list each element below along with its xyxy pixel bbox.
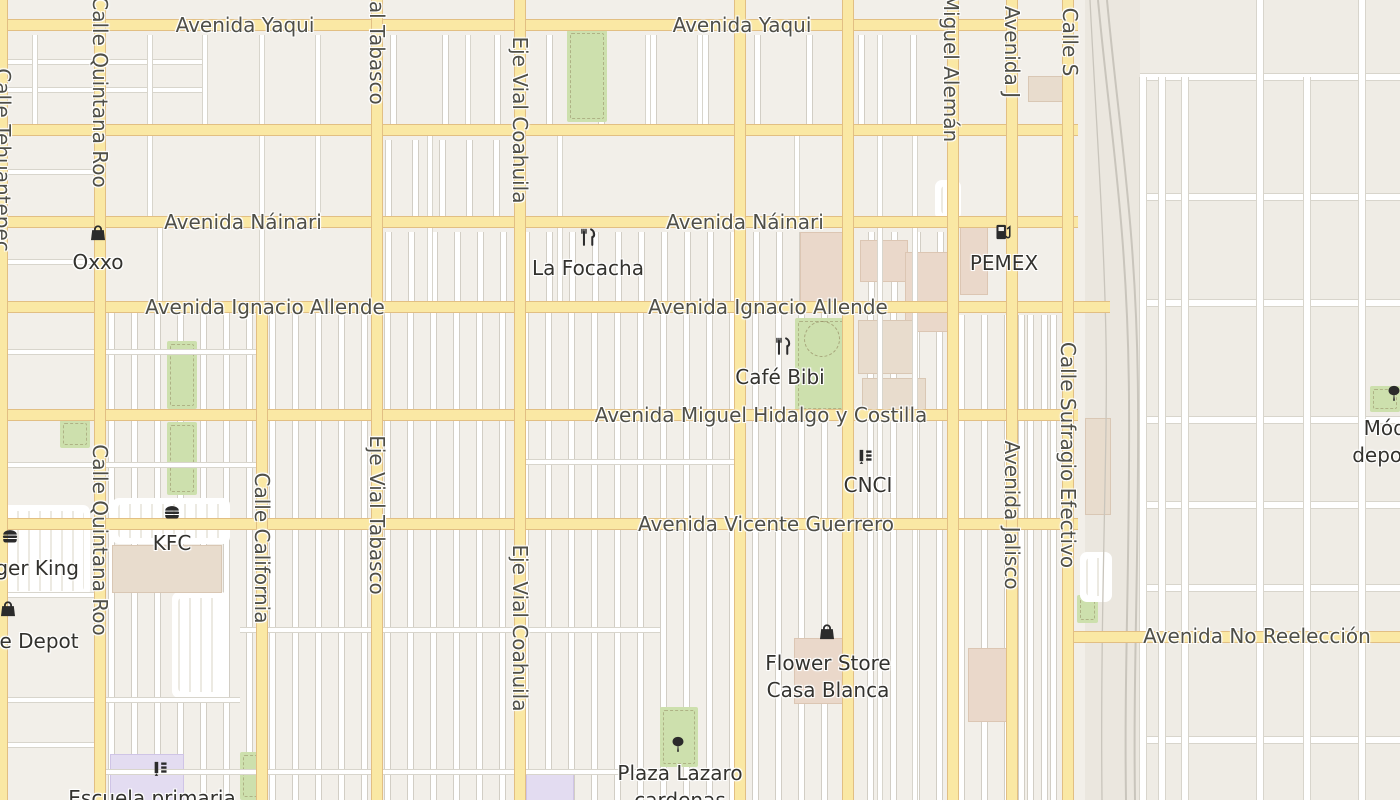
street-label: Avenida Yaqui (176, 13, 315, 37)
school-icon (151, 760, 170, 779)
shopping-bag-icon (89, 224, 108, 243)
street-label: Eje Vial Coahuila (508, 36, 532, 203)
building (1028, 76, 1064, 102)
burger-icon (1, 527, 20, 546)
street-label: Avenida Náinari (164, 210, 322, 234)
major-road-Avenida Jalisco (1006, 0, 1018, 800)
map-canvas[interactable]: Avenida YaquiAvenida YaquiAvenida Náinar… (0, 0, 1400, 800)
major-road-unnamed (734, 0, 746, 800)
park-green-area (567, 30, 607, 122)
railway-corridor-area (1085, 0, 1140, 800)
burger-icon (163, 503, 182, 522)
minor-road (240, 627, 660, 633)
poi-label-oxxo: Oxxo (72, 250, 123, 274)
minor-road (1358, 0, 1366, 800)
city-block-lots (390, 35, 943, 125)
poi-label-plaza-lazaro-cardenas: cardenas (634, 788, 725, 800)
restaurant-icon (579, 228, 598, 247)
street-label: Calle Tehuantepec (0, 68, 15, 252)
poi-label-cafe-bibi: Café Bibi (735, 365, 824, 389)
shopping-bag-icon (0, 600, 18, 619)
street-label: Avenida Vicente Guerrero (638, 512, 894, 536)
minor-road (1303, 77, 1311, 800)
minor-road (202, 35, 208, 130)
parking-lot (1080, 552, 1112, 602)
street-label: Calle California (250, 473, 274, 624)
restaurant-icon (774, 337, 793, 356)
park-green-area (60, 420, 90, 448)
minor-road (1158, 77, 1166, 800)
parking-lot (172, 592, 228, 698)
major-road-Avenida Náinari (0, 216, 1078, 228)
street-label: Calle S (1058, 8, 1082, 77)
poi-label-modulo-deportivo: Módulo (1364, 416, 1400, 440)
minor-road (465, 35, 471, 130)
street-label: Calle Sufragio Efectivo (1056, 342, 1080, 568)
street-label: Avenida Náinari (666, 210, 824, 234)
street-label: Avenida No Reelección (1143, 624, 1371, 648)
street-label: Avenida Yaqui (673, 13, 812, 37)
street-label: Avenida Ignacio Allende (145, 295, 385, 319)
street-label: Avenida J (1000, 6, 1024, 98)
poi-label-office-depot: Office Depot (0, 629, 79, 653)
building (860, 240, 908, 282)
poi-label-modulo-deportivo: deportivo (1352, 443, 1400, 467)
street-label: Eje Vial Coahuila (508, 544, 532, 711)
street-label: Miguel Alemán (939, 0, 963, 142)
minor-road (1256, 0, 1264, 800)
city-block-lots (385, 140, 518, 216)
major-road-Avenida Yaqui (0, 19, 1078, 31)
minor-road (697, 35, 703, 130)
street-label: Avenida Ignacio Allende (648, 295, 888, 319)
poi-label-plaza-lazaro-cardenas: Plaza Lazaro (617, 761, 742, 785)
poi-label-escuela-primaria: Escuela primaria (68, 786, 235, 800)
street-label: Avenida Jalisco (1000, 440, 1024, 589)
building (858, 320, 918, 374)
minor-road (0, 742, 95, 748)
tree-icon (669, 735, 688, 754)
minor-road (794, 130, 800, 222)
building (1085, 418, 1111, 515)
street-label: Eje Vial Tabasco (365, 435, 389, 595)
park-green-area (167, 422, 197, 495)
major-road-unnamed (0, 124, 1078, 136)
poi-label-la-focacha: La Focacha (532, 256, 644, 280)
school-icon (856, 448, 875, 467)
minor-road (0, 592, 95, 598)
poi-label-burger-king: Burger King (0, 556, 79, 580)
street-label: Calle Quintana Roo (88, 0, 112, 188)
minor-road (912, 130, 918, 800)
major-road-Eje Vial Tabasco (371, 0, 383, 800)
street-label: Calle Quintana Roo (88, 444, 112, 636)
poi-label-flower-store-casa-blanca: Flower Store (765, 651, 890, 675)
poi-label-pemex: PEMEX (970, 251, 1038, 275)
shopping-bag-icon (818, 623, 837, 642)
building (526, 774, 574, 800)
minor-road (1139, 77, 1147, 800)
minor-road (520, 459, 740, 465)
poi-label-cnci: CNCI (844, 473, 893, 497)
minor-road (259, 35, 265, 302)
street-label: Eje Vial Tabasco (365, 0, 389, 105)
poi-label-kfc: KFC (153, 531, 192, 555)
minor-road (32, 35, 38, 130)
minor-road (0, 462, 260, 468)
minor-road (0, 169, 100, 175)
minor-road (0, 349, 260, 355)
poi-label-flower-store-casa-blanca: Casa Blanca (767, 678, 890, 702)
street-label: Avenida Miguel Hidalgo y Costilla (595, 403, 928, 427)
minor-road (0, 697, 240, 703)
minor-road (1181, 77, 1189, 800)
tree-icon (1385, 384, 1400, 403)
park-path-circle (804, 321, 840, 357)
minor-road (645, 35, 651, 130)
fuel-icon (994, 223, 1013, 242)
